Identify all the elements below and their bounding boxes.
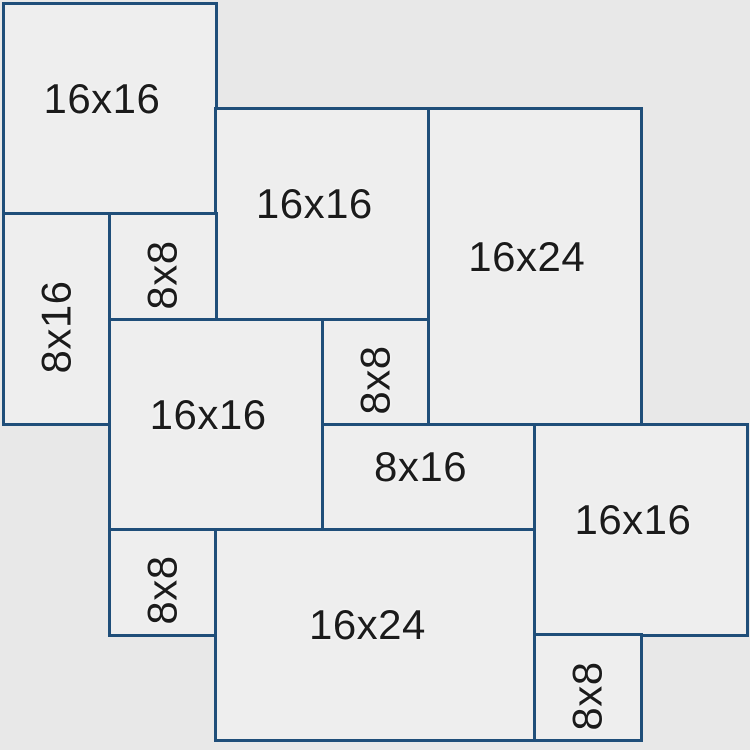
tile-size-label: 8x16: [374, 446, 467, 488]
tile-size-label: 16x24: [309, 604, 426, 646]
tile-size-label: 8x8: [142, 556, 184, 625]
tile-size-label: 8x16: [36, 281, 78, 374]
tile-8x8: 8x8: [321, 318, 431, 427]
tile-size-label: 8x8: [142, 240, 184, 309]
tile-size-label: 8x8: [354, 345, 396, 414]
tile-size-label: 8x8: [567, 661, 609, 730]
tile-size-label: 16x16: [150, 394, 267, 436]
tile-16x16: 16x16: [2, 2, 218, 216]
tile-16x24: 16x24: [214, 528, 536, 742]
tile-size-label: 16x16: [574, 499, 691, 541]
tile-size-label: 16x16: [256, 183, 373, 225]
tile-16x16: 16x16: [108, 318, 324, 532]
tile-8x16: 8x16: [2, 212, 112, 426]
tile-16x16: 16x16: [214, 107, 430, 321]
tile-16x24: 16x24: [427, 107, 643, 426]
tile-8x8: 8x8: [108, 212, 218, 321]
tile-8x8: 8x8: [533, 633, 643, 742]
tile-size-label: 16x24: [468, 236, 585, 278]
tile-8x16: 8x16: [321, 423, 537, 532]
tile-8x8: 8x8: [108, 528, 218, 637]
paver-pattern-diagram: 16x1616x1616x248x168x816x168x88x1616x168…: [0, 0, 750, 750]
tile-16x16: 16x16: [533, 423, 749, 637]
tile-size-label: 16x16: [43, 78, 160, 120]
